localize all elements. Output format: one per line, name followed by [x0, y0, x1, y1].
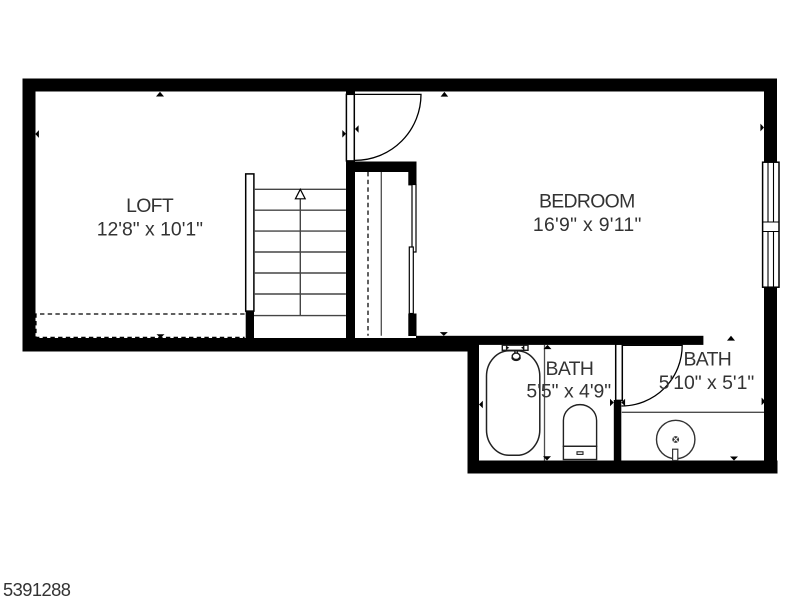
svg-text:BATH: BATH [683, 349, 731, 371]
svg-text:16'9" x 9'11": 16'9" x 9'11" [533, 214, 642, 236]
svg-text:BEDROOM: BEDROOM [539, 190, 635, 212]
svg-text:5'10" x 5'1": 5'10" x 5'1" [659, 372, 755, 394]
svg-text:BATH: BATH [546, 358, 594, 380]
svg-text:LOFT: LOFT [126, 195, 174, 217]
svg-text:5'5" x 4'9": 5'5" x 4'9" [526, 380, 611, 402]
svg-text:5391288: 5391288 [3, 579, 71, 600]
svg-text:12'8" x 10'1": 12'8" x 10'1" [97, 219, 203, 241]
